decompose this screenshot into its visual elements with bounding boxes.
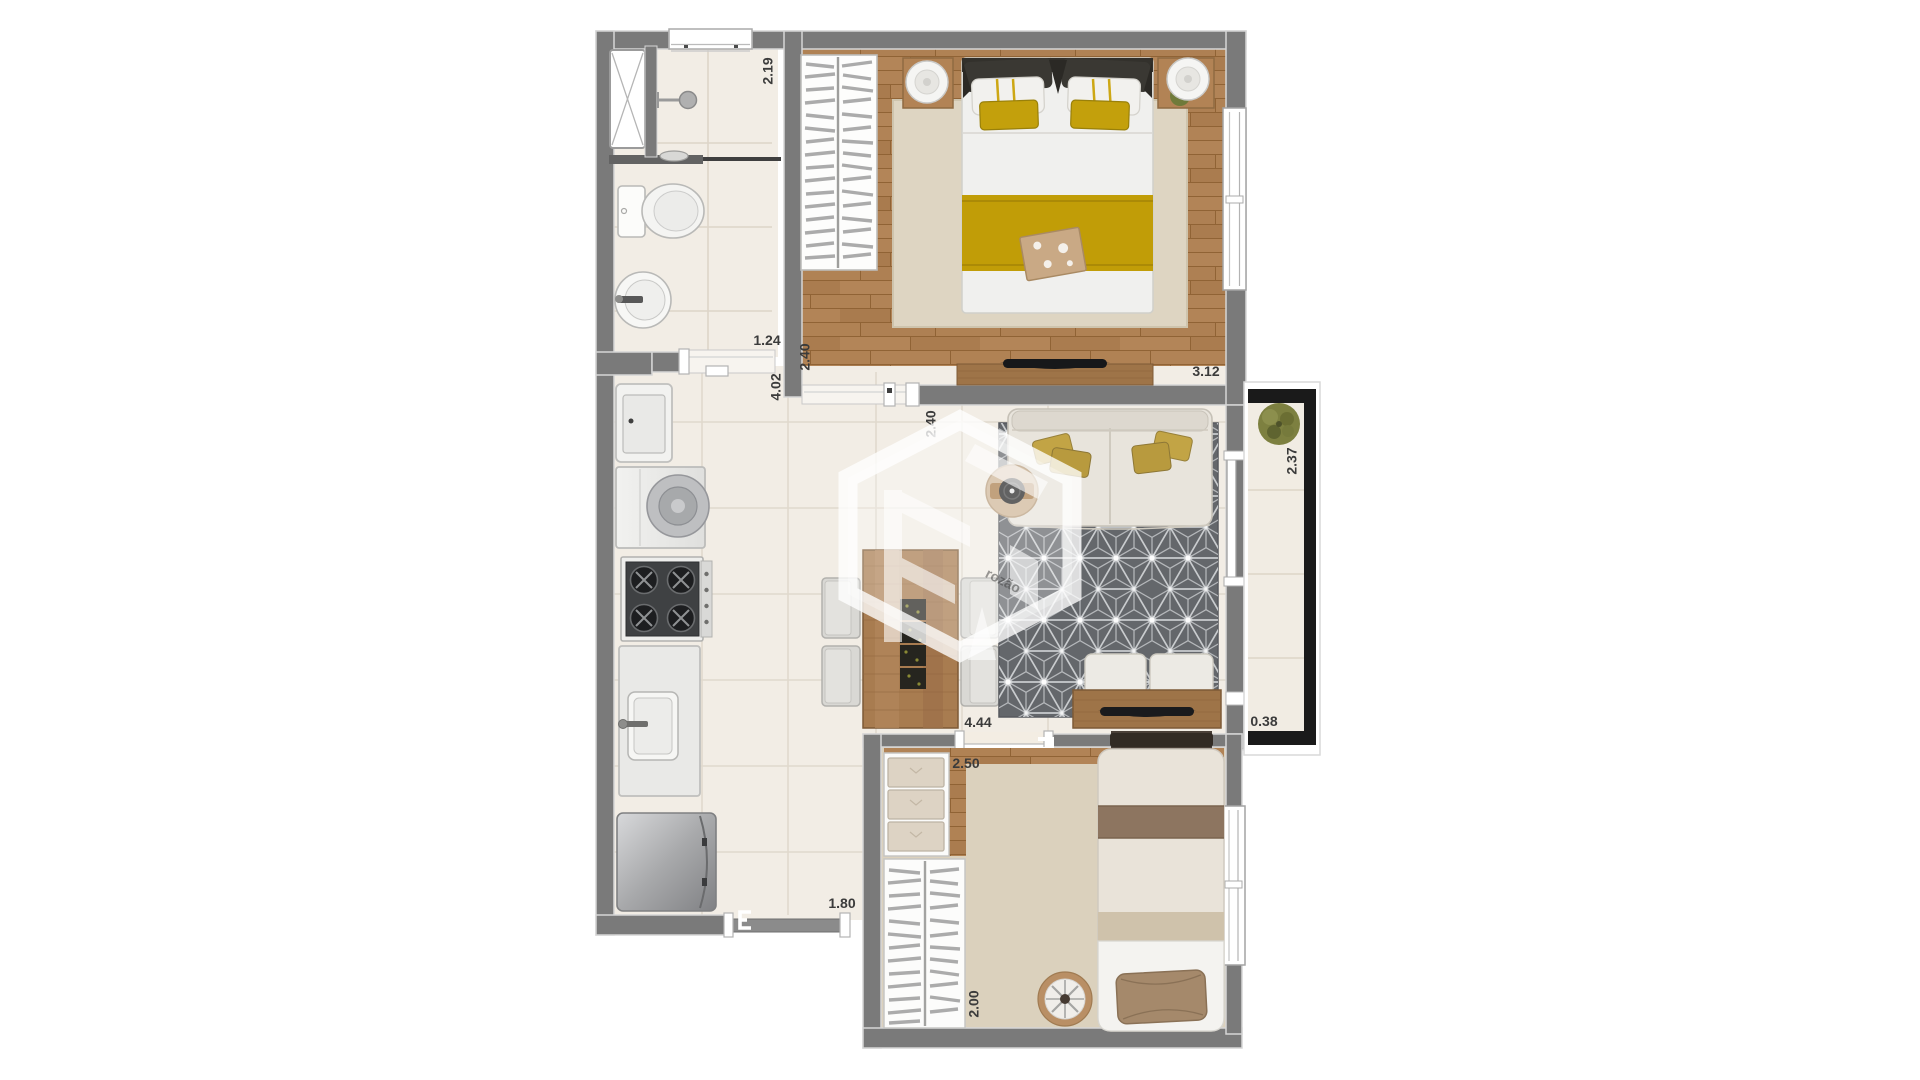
svg-text:4.02: 4.02 (768, 373, 784, 400)
svg-text:4.44: 4.44 (964, 714, 991, 730)
svg-text:2.40: 2.40 (797, 343, 813, 370)
svg-text:2.00: 2.00 (966, 990, 982, 1017)
svg-text:2.37: 2.37 (1284, 447, 1300, 474)
svg-text:3.12: 3.12 (1192, 363, 1219, 379)
svg-text:2.19: 2.19 (760, 57, 776, 84)
svg-text:0.38: 0.38 (1250, 713, 1277, 729)
svg-text:2.50: 2.50 (952, 755, 979, 771)
svg-text:1.24: 1.24 (753, 332, 780, 348)
svg-text:1.80: 1.80 (828, 895, 855, 911)
